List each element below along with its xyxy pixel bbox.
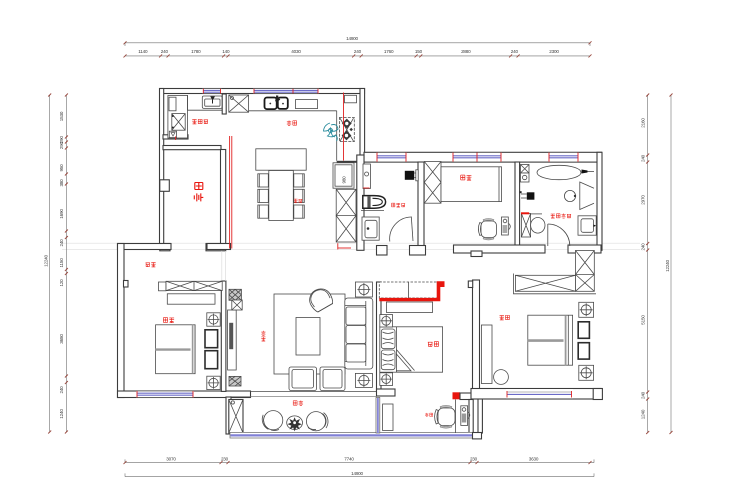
svg-text:3680: 3680 bbox=[59, 334, 64, 344]
svg-text:240: 240 bbox=[640, 391, 645, 399]
svg-text:5150: 5150 bbox=[640, 315, 645, 325]
svg-text:12240: 12240 bbox=[665, 259, 670, 271]
svg-text:12240: 12240 bbox=[44, 254, 49, 266]
svg-text:240: 240 bbox=[640, 243, 645, 251]
svg-text:1530: 1530 bbox=[59, 111, 64, 121]
svg-text:2300: 2300 bbox=[549, 49, 559, 54]
svg-text:230: 230 bbox=[221, 457, 229, 462]
svg-text:3630: 3630 bbox=[529, 457, 539, 462]
svg-text:950: 950 bbox=[59, 164, 64, 172]
svg-text:240: 240 bbox=[59, 386, 64, 394]
svg-text:14900: 14900 bbox=[351, 471, 363, 476]
svg-text:1150: 1150 bbox=[59, 258, 64, 268]
svg-text:380: 380 bbox=[59, 179, 64, 187]
svg-text:1760: 1760 bbox=[384, 49, 394, 54]
svg-text:1780: 1780 bbox=[191, 49, 201, 54]
svg-text:2160: 2160 bbox=[640, 118, 645, 128]
svg-text:150: 150 bbox=[415, 49, 423, 54]
svg-text:14900: 14900 bbox=[346, 36, 358, 41]
svg-text:240: 240 bbox=[511, 49, 519, 54]
svg-text:240: 240 bbox=[161, 49, 169, 54]
svg-text:7740: 7740 bbox=[344, 457, 354, 462]
svg-text:240: 240 bbox=[59, 239, 64, 247]
svg-text:240: 240 bbox=[640, 154, 645, 162]
svg-text:1690: 1690 bbox=[59, 209, 64, 219]
svg-text:4030: 4030 bbox=[291, 49, 301, 54]
svg-text:2880: 2880 bbox=[461, 49, 471, 54]
svg-text:2970: 2970 bbox=[640, 195, 645, 205]
svg-text:1140: 1140 bbox=[138, 49, 148, 54]
svg-text:230: 230 bbox=[470, 457, 478, 462]
svg-text:140: 140 bbox=[222, 49, 230, 54]
svg-text:1240: 1240 bbox=[640, 409, 645, 419]
svg-text:980: 980 bbox=[342, 176, 347, 184]
svg-text:290: 290 bbox=[59, 141, 64, 149]
svg-text:3070: 3070 bbox=[166, 457, 176, 462]
svg-text:120: 120 bbox=[59, 279, 64, 287]
svg-text:240: 240 bbox=[354, 49, 362, 54]
svg-text:1240: 1240 bbox=[59, 409, 64, 419]
